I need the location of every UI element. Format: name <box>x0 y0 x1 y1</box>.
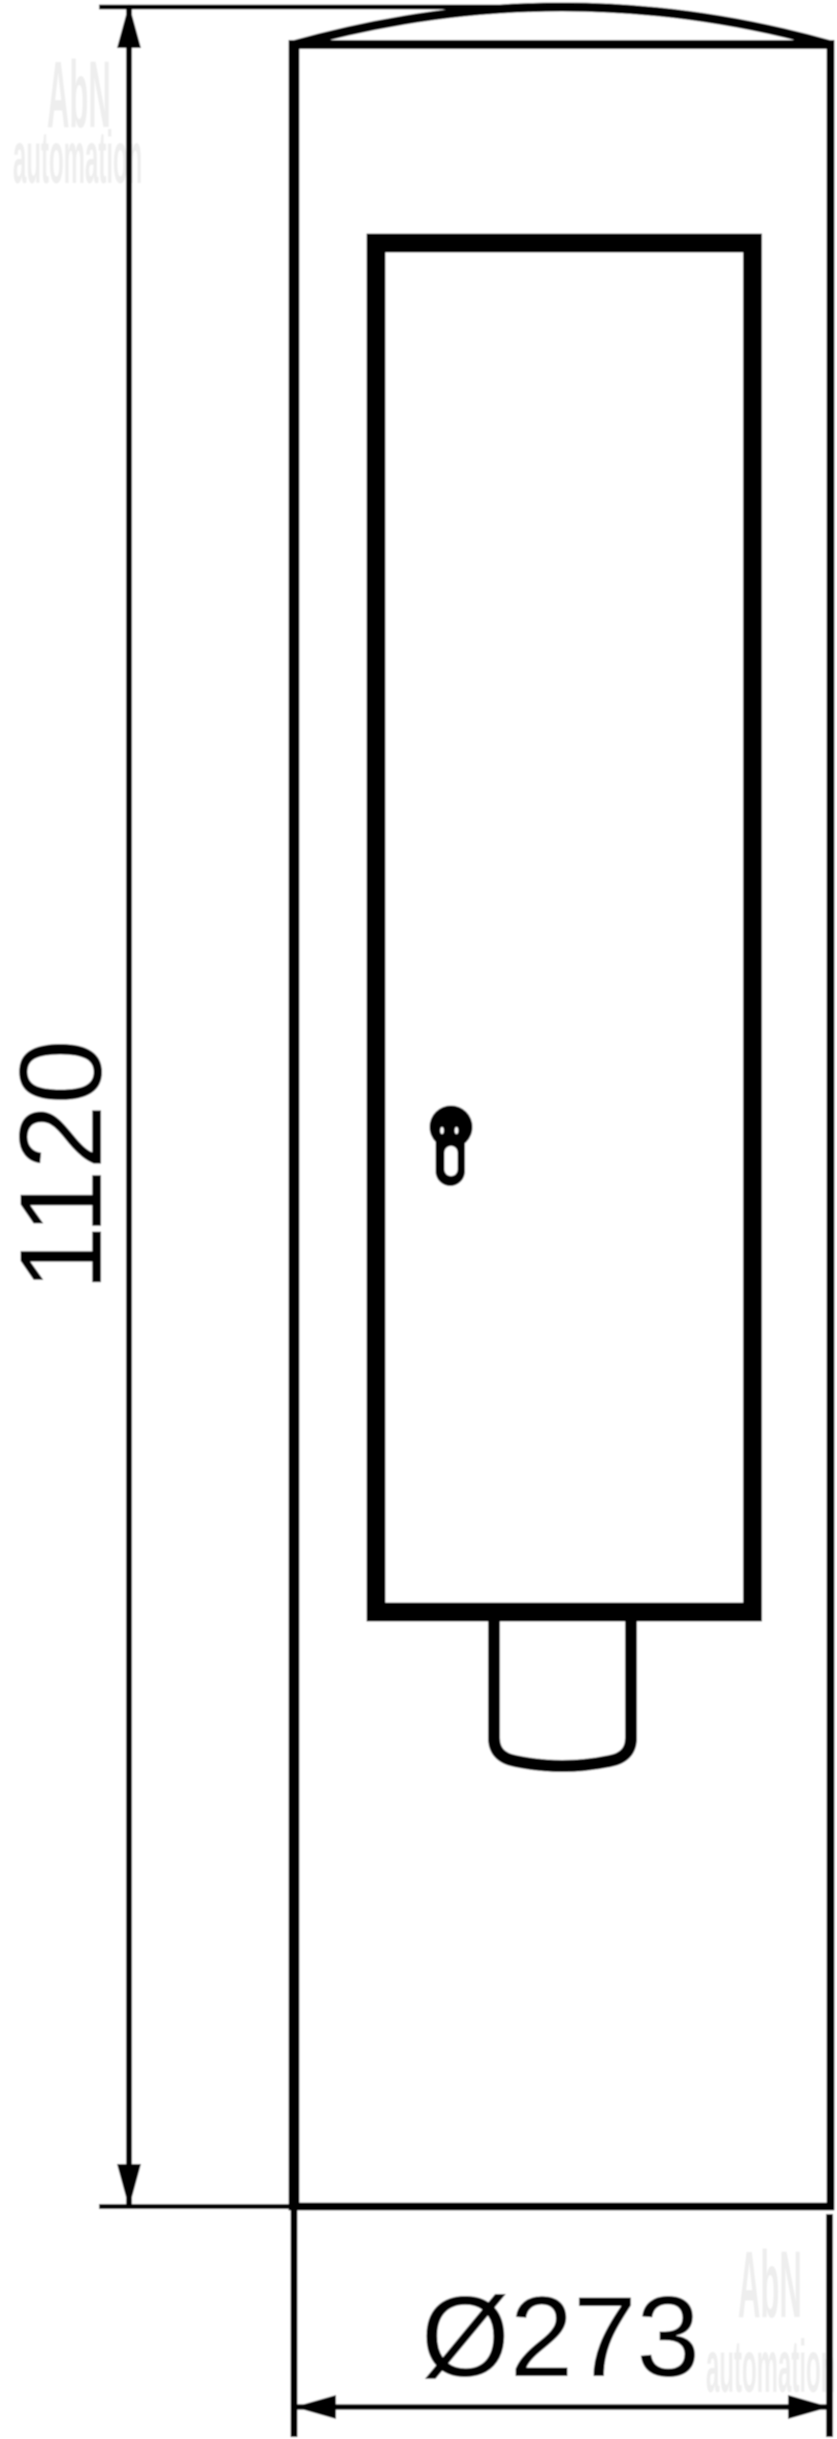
svg-text:automation: automation <box>13 116 142 199</box>
svg-text:Ø273: Ø273 <box>421 2274 700 2401</box>
svg-text:automation: automation <box>706 2325 835 2408</box>
svg-text:1120: 1120 <box>0 1039 126 1291</box>
svg-text:AbN: AbN <box>738 2231 802 2337</box>
